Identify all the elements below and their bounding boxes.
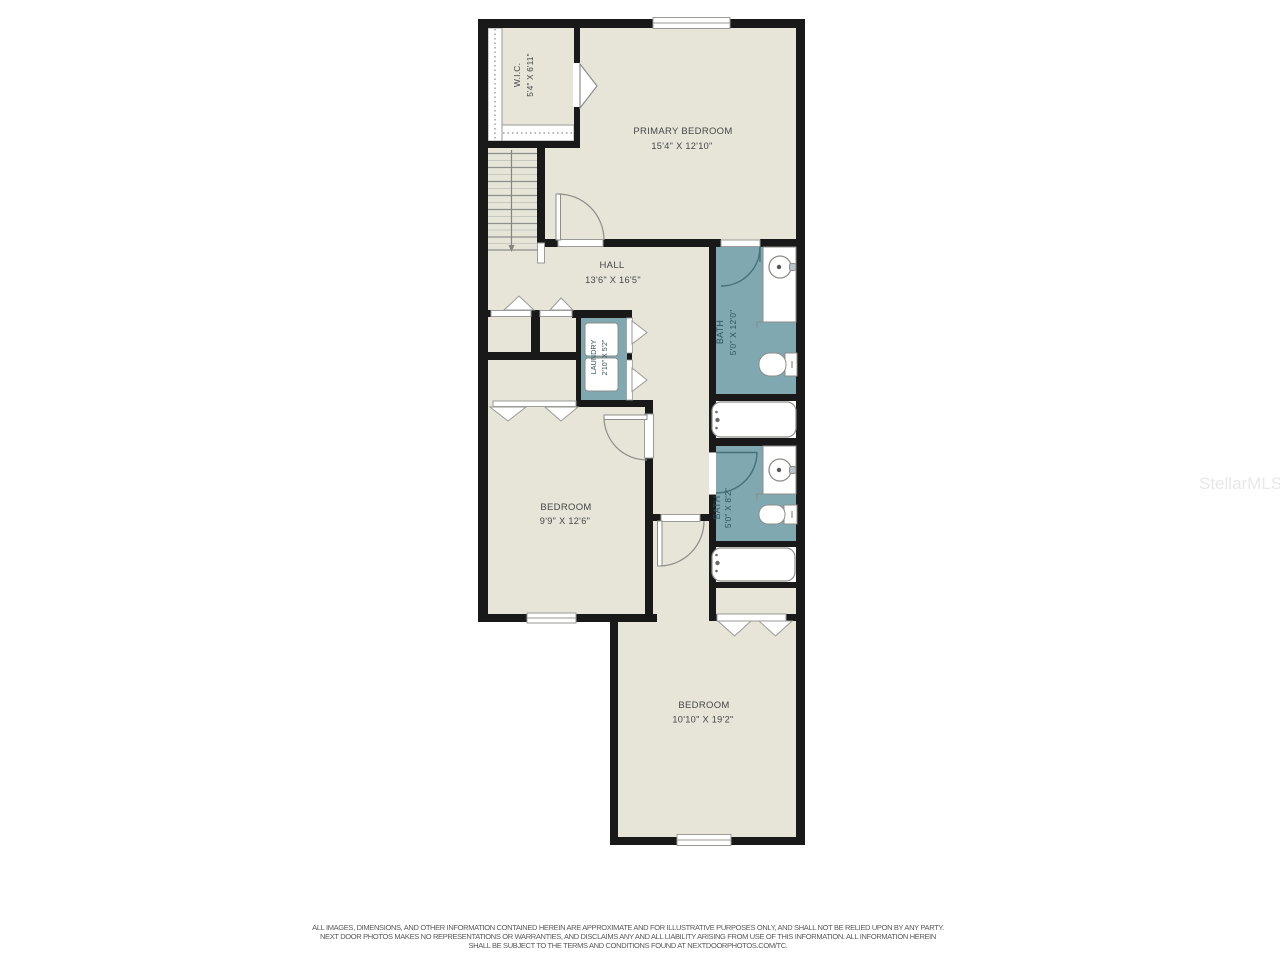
svg-text:BATH: BATH <box>712 496 722 520</box>
svg-text:5'0" X 12'0": 5'0" X 12'0" <box>728 310 738 356</box>
svg-text:SHALL BE SUBJECT TO THE TERMS: SHALL BE SUBJECT TO THE TERMS AND CONDIT… <box>468 941 787 950</box>
svg-text:HALL: HALL <box>600 260 625 271</box>
svg-text:9'9" X 12'6": 9'9" X 12'6" <box>540 516 590 526</box>
svg-text:13'6" X 16'5": 13'6" X 16'5" <box>585 275 641 285</box>
svg-text:BEDROOM: BEDROOM <box>540 502 591 513</box>
svg-text:5'4" X 6'11": 5'4" X 6'11" <box>526 53 535 97</box>
svg-text:BATH: BATH <box>715 320 725 344</box>
svg-text:ALL IMAGES, DIMENSIONS, AND OT: ALL IMAGES, DIMENSIONS, AND OTHER INFORM… <box>312 923 944 932</box>
svg-text:StellarMLS: StellarMLS <box>1199 474 1280 493</box>
svg-text:NEXT DOOR PHOTOS MAKES NO REPR: NEXT DOOR PHOTOS MAKES NO REPRESENTATION… <box>320 932 936 941</box>
svg-text:5'0" X 8'2": 5'0" X 8'2" <box>723 488 733 528</box>
svg-text:W.I.C.: W.I.C. <box>512 63 522 87</box>
svg-text:15'4" X 12'10": 15'4" X 12'10" <box>651 141 712 151</box>
svg-text:10'10" X 19'2": 10'10" X 19'2" <box>672 715 733 725</box>
svg-text:PRIMARY BEDROOM: PRIMARY BEDROOM <box>633 126 732 137</box>
svg-text:2'10" X 5'2": 2'10" X 5'2" <box>602 339 609 375</box>
svg-text:LAUNDRY: LAUNDRY <box>589 340 598 375</box>
svg-text:BEDROOM: BEDROOM <box>678 700 729 711</box>
